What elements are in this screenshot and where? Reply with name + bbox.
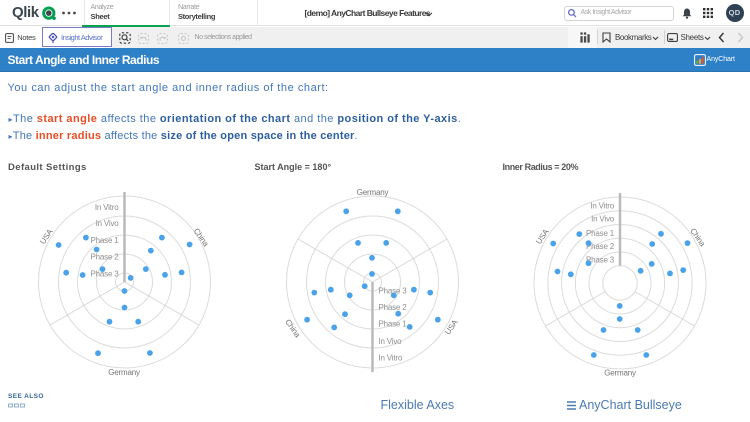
svg-text:In Vivo: In Vivo [591, 215, 615, 224]
svg-text:USA: USA [38, 227, 55, 246]
svg-text:In Vivo: In Vivo [379, 337, 403, 346]
svg-text:Germany: Germany [604, 368, 636, 377]
svg-text:In Vitro: In Vitro [379, 354, 403, 363]
svg-text:Phase 2: Phase 2 [379, 303, 408, 312]
svg-text:USA: USA [443, 318, 460, 337]
svg-text:Phase 1: Phase 1 [586, 229, 615, 238]
svg-text:China: China [283, 318, 302, 340]
svg-text:Phase 1: Phase 1 [91, 236, 120, 245]
svg-text:In Vitro: In Vitro [95, 203, 119, 212]
svg-text:In Vivo: In Vivo [96, 219, 120, 228]
svg-text:Germany: Germany [357, 188, 389, 197]
svg-text:Germany: Germany [108, 368, 140, 377]
svg-text:China: China [192, 227, 211, 249]
svg-text:Phase 2: Phase 2 [91, 253, 120, 262]
svg-text:USA: USA [534, 227, 551, 246]
svg-text:China: China [688, 227, 707, 249]
svg-text:In Vitro: In Vitro [590, 202, 614, 211]
svg-text:Phase 1: Phase 1 [379, 320, 408, 329]
